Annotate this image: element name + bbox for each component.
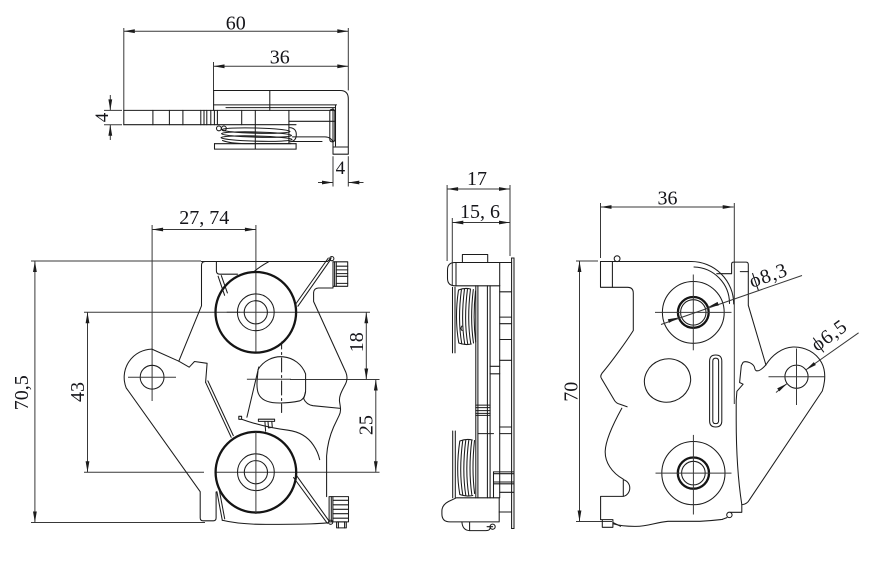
svg-text:70: 70 xyxy=(560,382,582,402)
svg-text:60: 60 xyxy=(226,13,246,35)
svg-text:36: 36 xyxy=(658,188,678,210)
svg-text:17: 17 xyxy=(467,168,487,190)
svg-text:18: 18 xyxy=(346,332,368,352)
svg-text:4: 4 xyxy=(336,158,346,179)
svg-text:25: 25 xyxy=(355,415,377,435)
svg-text:43: 43 xyxy=(67,382,89,402)
svg-text:4: 4 xyxy=(92,112,113,122)
svg-text:ϕ6,5: ϕ6,5 xyxy=(807,315,852,356)
svg-text:27, 74: 27, 74 xyxy=(179,207,229,229)
svg-text:36: 36 xyxy=(270,47,290,69)
svg-text:70,5: 70,5 xyxy=(11,375,33,410)
svg-text:15, 6: 15, 6 xyxy=(460,201,500,223)
